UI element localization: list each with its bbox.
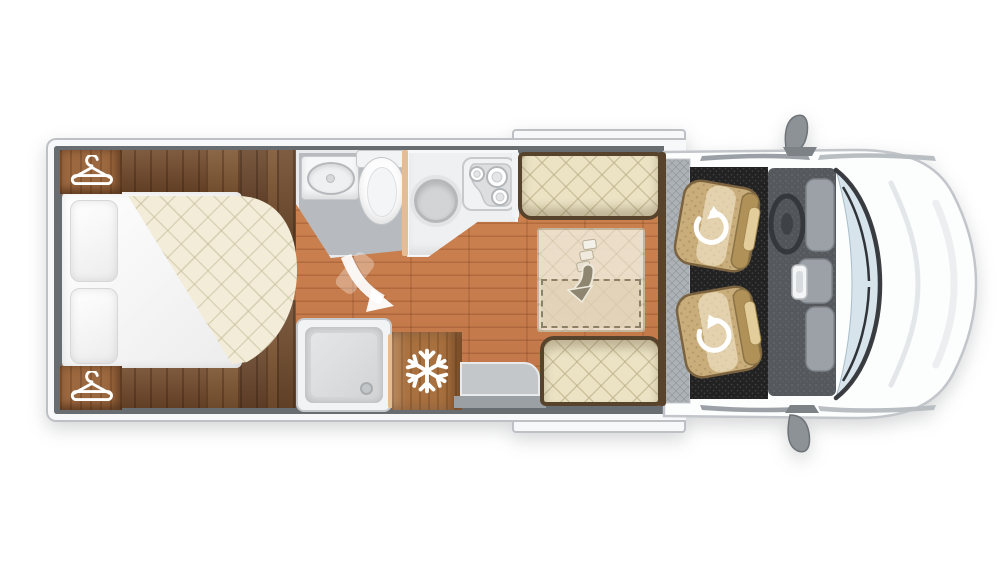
hanger-icon (66, 371, 116, 405)
bed-cabinet-step (118, 150, 206, 192)
wardrobe-top (60, 150, 122, 194)
wing-mirror-bottom (785, 405, 819, 452)
fridge (392, 332, 462, 410)
steering-wheel-hub (781, 213, 793, 235)
wing-mirror-top (783, 115, 817, 156)
fold-down-arrow-icon (566, 238, 612, 306)
entry-step (460, 362, 540, 396)
driver-cab (640, 95, 1000, 470)
burner (492, 189, 508, 205)
dinette-bench-rear (540, 336, 662, 406)
wardrobe-bottom (60, 366, 122, 410)
shower-drain (360, 382, 373, 395)
handbrake-grip (796, 271, 803, 293)
toilet-seat (367, 167, 397, 217)
entry-step-lower (454, 396, 546, 408)
motorhome-floorplan (0, 0, 1000, 563)
dinette-bench-front (518, 152, 662, 220)
kitchen-sink (414, 179, 458, 223)
hanger-icon (66, 155, 116, 189)
console-block-bottom (806, 307, 834, 371)
vehicle (0, 0, 1000, 563)
passenger-seat (674, 284, 765, 380)
burner (470, 167, 484, 181)
bed-cabinet-step (118, 366, 206, 408)
snowflake-icon (403, 347, 451, 395)
basin-drain (326, 174, 335, 183)
bed-cabinet-step (206, 150, 240, 198)
console-block-top (806, 179, 834, 251)
burner (487, 167, 507, 187)
wall-section (402, 150, 408, 256)
pillow (70, 200, 118, 282)
pillow (70, 288, 118, 364)
hob (462, 157, 516, 211)
door-swing-arrow-icon (332, 250, 396, 316)
driver-seat (672, 178, 763, 274)
